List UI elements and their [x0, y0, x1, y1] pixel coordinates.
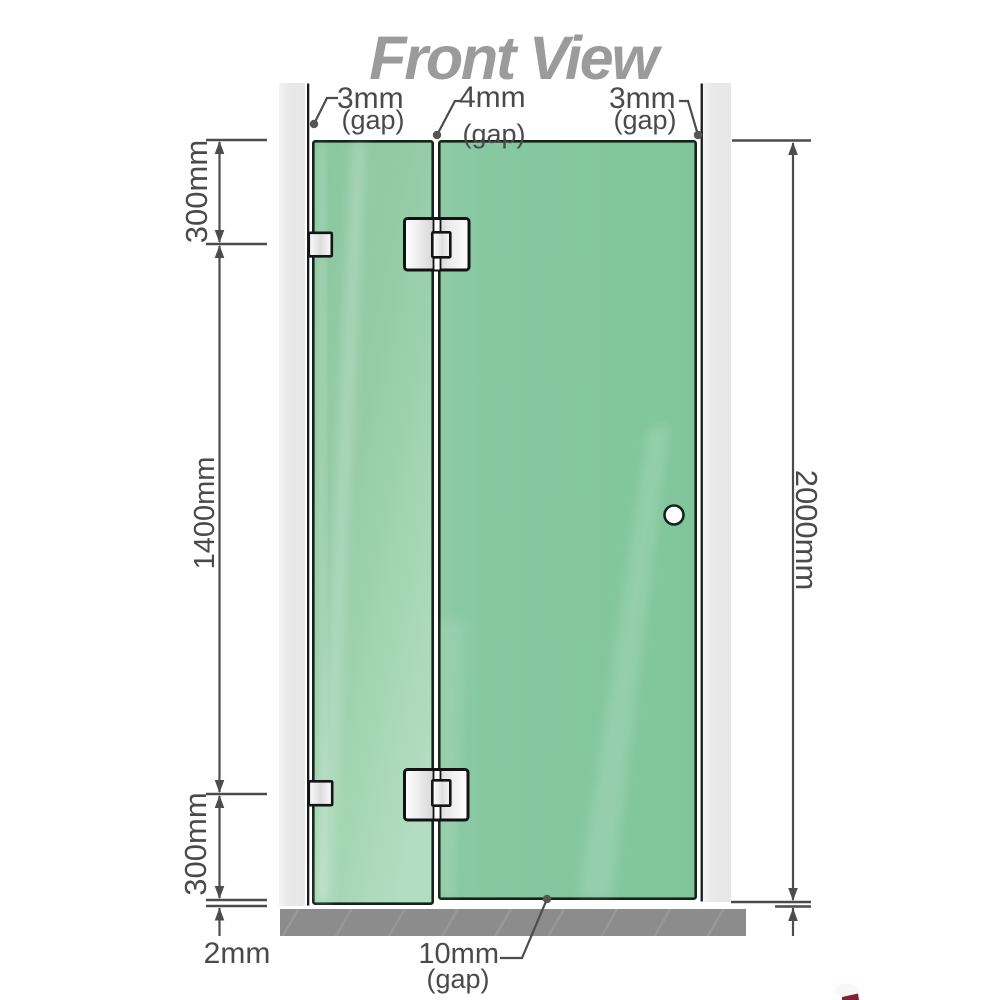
- svg-text:300mm: 300mm: [179, 140, 214, 243]
- svg-text:2mm: 2mm: [204, 937, 271, 970]
- svg-text:(gap): (gap): [426, 964, 489, 994]
- svg-text:1400mm: 1400mm: [189, 457, 221, 570]
- svg-text:(gap): (gap): [613, 105, 676, 135]
- svg-text:300mm: 300mm: [178, 792, 213, 895]
- svg-text:2000mm: 2000mm: [789, 470, 824, 591]
- svg-text:(gap): (gap): [341, 105, 404, 135]
- svg-text:(gap): (gap): [462, 119, 525, 149]
- svg-text:4mm: 4mm: [459, 81, 526, 114]
